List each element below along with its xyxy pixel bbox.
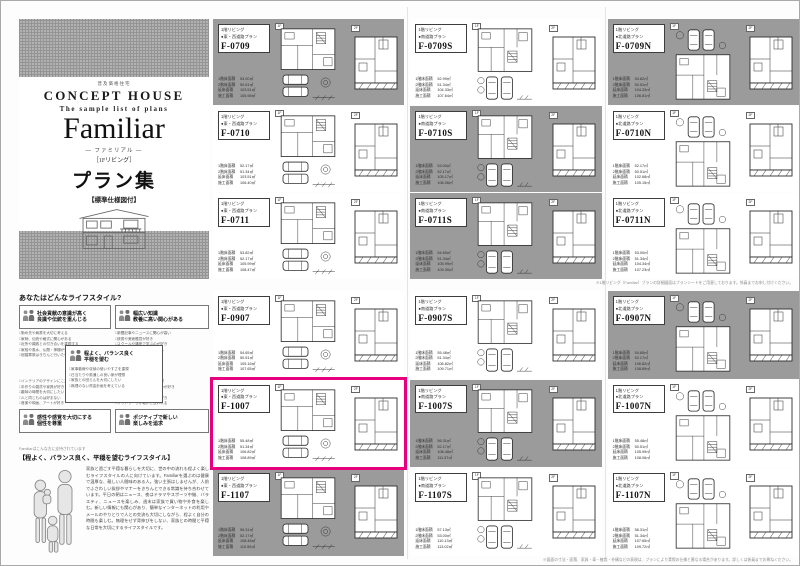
plan-label-box: 1階リビング●南道路プランF-1107S [415,473,467,502]
cover-title-block: 普及価格住宅 CONCEPT HOUSE The sample list of … [19,77,209,231]
recommend-lead: Familiarはこんな方に支持されています [19,447,209,452]
plan-label-box: 1階リビング●東・西道路プランF-0907 [218,296,270,325]
lifestyle-title: あなたはどんなライフスタイル? [19,293,209,303]
floor2-plan-drawing [353,122,399,180]
plan-living-label: 1階リビング [221,299,267,305]
plan-stats: 1階床面積52.17㎡2階床面積51.34㎡延床面積103.51㎡施工面積106… [218,164,255,186]
plan-id: F-0711N [616,215,662,225]
plan-stat-name: 施工面積 [613,545,632,551]
cover-series-name: Familiar [19,114,209,145]
plan-stats: 1階床面積54.65㎡2階床面積51.34㎡延床面積105.99㎡施工面積109… [415,251,452,273]
floor1-plan-drawing [472,201,538,275]
plan-id: F-0710N [616,128,662,138]
heading-line: 良識や伝統を重んじる [37,317,87,323]
plan-stat-value: 105.98㎡ [240,94,255,100]
floor2-tag: 2F [351,112,360,119]
plan-stat-value: 108.06㎡ [635,456,650,462]
plan-stats: 1階床面積53.00㎡2階床面積50.51㎡延床面積103.51㎡施工面積105… [218,77,255,99]
floor2-plan-drawing [551,484,597,542]
plan-column: 1階リビング●北道路プランF-0709N1階床面積53.82㎡2階床面積50.5… [608,19,799,279]
plan-card: 1階リビング●南道路プランF-0710S1階床面積53.00㎡2階床面積52.1… [410,106,601,192]
lifestyle-center-box: 程よく、バランス良く 平穏を望む □家事動線や収納の使いやすさを重視□日当たりや… [65,345,163,403]
floor2-tag: 2F [549,386,558,393]
plan-stats: 1階床面積57.13㎡2階床面積53.00㎡延床面積110.13㎡施工面積113… [415,528,452,550]
people-icon [69,348,82,366]
plan-stat-name: 施工面積 [613,94,632,100]
plan-label-box: 1階リビング●東・西道路プランF-1107 [218,473,270,502]
plan-card: 1階リビング●北道路プランF-1007N1階床面積55.48㎡2階床面積50.5… [608,380,799,468]
floor2-plan-drawing [748,35,794,93]
plan-id: F-1107S [418,490,464,500]
plan-living-label: 1階リビング [616,299,662,305]
floor1-plan-drawing [670,476,736,550]
plan-road-label: ●南道路プラン [418,34,464,40]
plan-stat-name: 施工面積 [218,268,237,274]
heading-line: 平穏を望む [84,357,109,363]
plan-living-label: 1階リビング [418,201,464,207]
plan-living-label: 1階リビング [616,476,662,482]
plan-stat-name: 施工面積 [415,456,434,462]
floor2-tag: 2F [549,199,558,206]
plan-road-label: ●南道路プラン [418,306,464,312]
plan-stats: 1階床面積56.31㎡2階床面積52.17㎡延床面積108.48㎡施工面積111… [415,439,452,461]
floor2-tag: 2F [746,386,755,393]
plan-stat-name: 施工面積 [613,268,632,274]
plan-stat-value: 106.81㎡ [635,94,650,100]
plan-id: F-0709 [221,41,267,51]
plan-id: F-0709S [418,41,464,51]
plan-id: F-1007 [221,401,267,411]
floor2-tag: 2F [351,474,360,481]
plan-stat-row: 施工面積107.65㎡ [218,367,255,373]
plan-stat-value: 108.89㎡ [240,456,255,462]
plan-stat-value: 105.15㎡ [635,181,650,187]
floor2-plan-drawing [748,122,794,180]
floor2-plan-drawing [353,307,399,365]
plan-id: F-0907N [616,313,662,323]
plan-stat-name: 施工面積 [415,367,434,373]
cover-title: プラン集 [19,166,209,193]
plan-card: 1階リビング●東・西道路プランF-07091階床面積53.00㎡2階床面積50.… [213,19,404,105]
cover-series-kana: ― ファミリアル ― [19,146,209,154]
plan-card: 1階リビング●南道路プランF-1007S1階床面積56.31㎡2階床面積52.1… [410,380,601,468]
grid-bottom-caption: ※図面の寸法・面積、家具・車・植栽・外構などの表現は、プランにより実際の仕様と異… [543,558,793,563]
plan-stat-row: 施工面積109.72㎡ [613,545,650,551]
plan-road-label: ●北道路プラン [616,483,662,489]
heading-line: 感性や感覚を大切にする [37,415,92,421]
plan-road-label: ●東・西道路プラン [221,483,267,489]
plan-catalog-sheet: 普及価格住宅 CONCEPT HOUSE The sample list of … [0,0,800,566]
lifestyle-diagram: 社会貢献の意識が高く 良識や伝統を重んじる □勤め先や肩書を大切に考える□家柄、… [19,305,209,443]
plan-card: 1階リビング●北道路プランF-1107N1階床面積56.31㎡2階床面積51.3… [608,468,799,556]
plan-id: F-1007N [616,401,662,411]
plan-stat-row: 施工面積108.89㎡ [218,456,255,462]
plan-road-label: ●南道路プラン [418,394,464,400]
plan-road-label: ●東・西道路プラン [221,306,267,312]
plan-living-label: 1階リビング [616,388,662,394]
floor1-plan-drawing [670,27,736,101]
plan-stat-row: 施工面積110.55㎡ [218,545,255,551]
floor2-tag: 2F [351,25,360,32]
heading-line: 楽しみを追求 [133,421,163,427]
plan-stat-row: 施工面積106.81㎡ [613,94,650,100]
plan-id: F-0709N [616,41,662,51]
floor2-tag: 2F [549,474,558,481]
plan-id: F-0711S [418,215,464,225]
plan-stat-value: 109.30㎡ [437,268,452,274]
floor2-plan-drawing [748,396,794,454]
plan-stat-value: 108.89㎡ [635,367,650,373]
plan-living-label: 1階リビング [418,299,464,305]
people-icon [22,308,35,326]
plan-stat-row: 施工面積108.89㎡ [613,367,650,373]
floor1-plan-drawing [670,201,736,275]
floor2-plan-drawing [551,209,597,267]
plan-column: 1階リビング●南道路プランF-0907S1階床面積55.48㎡2階床面積51.3… [410,291,601,556]
plan-living-label: 1階リビング [221,27,267,33]
plan-stat-name: 施工面積 [415,181,434,187]
plan-living-label: 1階リビング [418,114,464,120]
family-illustration [19,466,81,559]
plan-stats: 1階床面積53.82㎡2階床面積50.51㎡延床面積104.33㎡施工面積106… [613,77,650,99]
floor2-plan-drawing [353,209,399,267]
heading-line: 個性を尊重 [37,421,62,427]
floor2-tag: 2F [351,297,360,304]
plan-card: 1階リビング●南道路プランF-1107S1階床面積57.13㎡2階床面積53.0… [410,468,601,556]
plan-label-box: 1階リビング●南道路プランF-1007S [415,385,467,414]
plan-road-label: ●北道路プラン [616,208,662,214]
quadrant-heading: 感性や感覚を大切にする 個性を尊重 [19,409,111,433]
floor2-tag: 2F [351,386,360,393]
house-sketch-icon [19,206,209,257]
people-icon [22,412,35,430]
plan-stat-value: 113.02㎡ [437,545,452,551]
plan-living-label: 1階リビング [418,476,464,482]
plan-road-label: ●南道路プラン [418,121,464,127]
floor2-plan-drawing [551,307,597,365]
plan-stats: 1階床面積53.82㎡2階床面積52.17㎡延床面積105.99㎡施工面積108… [218,251,255,273]
plan-column: 1階リビング●北道路プランF-0907N1階床面積54.65㎡2階床面積52.1… [608,291,799,556]
floor1-plan-drawing [670,114,736,188]
plan-road-label: ●東・西道路プラン [221,208,267,214]
plan-stat-name: 施工面積 [415,94,434,100]
plan-road-label: ●南道路プラン [418,208,464,214]
plan-stats: 1階床面積53.00㎡2階床面積51.34㎡延床面積104.34㎡施工面積107… [613,251,650,273]
people-icon [118,412,131,430]
floor2-tag: 2F [351,199,360,206]
floor2-plan-drawing [353,35,399,93]
plan-stat-row: 施工面積108.06㎡ [613,456,650,462]
plan-road-label: ●北道路プラン [616,34,662,40]
floor2-plan-drawing [748,307,794,365]
plan-stats: 1階床面積56.31㎡2階床面積52.17㎡延床面積108.48㎡施工面積110… [218,528,255,550]
plan-living-label: 1階リビング [221,201,267,207]
center-heading: 程よく、バランス良く 平穏を望む [69,348,159,366]
plan-stat-value: 108.47㎡ [240,268,255,274]
floor1-plan-drawing [275,476,341,550]
people-icon [118,308,131,326]
floor2-plan-drawing [353,396,399,454]
plan-stat-row: 施工面積107.64㎡ [415,94,452,100]
plan-stats: 1階床面積52.17㎡2階床面積50.51㎡延床面積102.68㎡施工面積105… [613,164,650,186]
plan-id: F-1007S [418,401,464,411]
plan-stat-row: 施工面積105.15㎡ [613,181,650,187]
plan-stat-name: 施工面積 [218,181,237,187]
plan-stat-name: 施工面積 [613,456,632,462]
plan-stat-value: 109.71㎡ [437,367,452,373]
plan-label-box: 1階リビング●東・西道路プランF-0710 [218,111,270,140]
plan-label-box: 1階リビング●南道路プランF-0907S [415,296,467,325]
floor1-plan-drawing [275,201,341,275]
plan-stat-value: 107.64㎡ [437,94,452,100]
plan-road-label: ●東・西道路プラン [221,34,267,40]
plan-stat-row: 施工面積107.23㎡ [613,268,650,274]
quadrant-heading-text: 感性や感覚を大切にする 個性を尊重 [37,415,92,428]
plan-card: 1階リビング●北道路プランF-0907N1階床面積54.65㎡2階床面積52.1… [608,291,799,379]
quadrant-heading-text: 社会貢献の意識が高く 良識や伝統を重んじる [37,311,87,324]
plan-id: F-1107N [616,490,662,500]
plan-stat-value: 110.55㎡ [240,545,255,551]
floor2-tag: 2F [549,25,558,32]
plan-stat-value: 107.23㎡ [635,268,650,274]
plan-id: F-0711 [221,215,267,225]
plan-id: F-0710 [221,128,267,138]
plan-stat-row: 施工面積108.47㎡ [218,268,255,274]
floor1-plan-drawing [275,114,341,188]
floor1-plan-drawing [275,388,341,462]
floor2-plan-drawing [748,209,794,267]
plan-label-box: 1階リビング●南道路プランF-0710S [415,111,467,140]
cover-brand: CONCEPT HOUSE [19,88,209,104]
plan-card: 1階リビング●東・西道路プランF-07101階床面積52.17㎡2階床面積51.… [213,106,404,192]
plan-road-label: ●東・西道路プラン [221,394,267,400]
plan-living-label: 1階リビング [221,114,267,120]
plan-stats: 1階床面積52.99㎡2階床面積51.34㎡延床面積104.33㎡施工面積107… [415,77,452,99]
plan-grid-top: 1階リビング●東・西道路プランF-07091階床面積53.00㎡2階床面積50.… [213,19,799,279]
plan-stat-row: 施工面積109.71㎡ [415,367,452,373]
floor1-plan-drawing [472,476,538,550]
plan-road-label: ●北道路プラン [616,121,662,127]
plan-road-label: ●北道路プラン [616,394,662,400]
plan-stat-value: 108.06㎡ [437,181,452,187]
plan-stat-name: 施工面積 [218,94,237,100]
floor1-plan-drawing [472,114,538,188]
floor2-tag: 2F [549,297,558,304]
plan-stat-value: 111.37㎡ [437,456,452,462]
floor2-plan-drawing [353,484,399,542]
plan-stats: 1階床面積55.48㎡2階床面積50.51㎡延床面積105.99㎡施工面積108… [613,439,650,461]
plan-label-box: 1階リビング●東・西道路プランF-1007 [218,385,270,414]
floor2-plan-drawing [748,484,794,542]
plan-stat-row: 施工面積109.30㎡ [415,268,452,274]
floor1-plan-drawing [670,388,736,462]
floor2-tag: 2F [549,112,558,119]
floor2-plan-drawing [551,122,597,180]
plan-stats: 1階床面積55.48㎡2階床面積51.34㎡延床面積106.82㎡施工面積108… [218,439,255,461]
quadrant-heading-text: 幅広い知識 教養に高い関心がある [133,311,183,324]
floor1-plan-drawing [670,299,736,373]
plan-living-label: 1階リビング [616,201,662,207]
cover-spec-note: 【標準仕様図付】 [19,194,209,204]
floor2-tag: 2F [746,474,755,481]
cover-tagline: 普及価格住宅 [19,81,209,87]
plan-road-label: ●南道路プラン [418,483,464,489]
plan-column: 1階リビング●東・西道路プランF-09071階床面積54.65㎡2階床面積50.… [213,291,404,556]
floor2-tag: 2F [746,199,755,206]
plan-stat-row: 施工面積105.98㎡ [218,94,255,100]
plan-living-label: 1階リビング [221,388,267,394]
center-items: □家事動線や収納の使いやすさを重視□日当たりや風通しの良い家が理想□家族との団ら… [69,367,159,389]
plan-stat-row: 施工面積111.37㎡ [415,456,452,462]
floor2-plan-drawing [551,396,597,454]
plan-card: 1階リビング●南道路プランF-0709S1階床面積52.99㎡2階床面積51.3… [410,19,601,105]
floor1-plan-drawing [472,388,538,462]
plan-column: 1階リビング●東・西道路プランF-07091階床面積53.00㎡2階床面積50.… [213,19,404,279]
plan-label-box: 1階リビング●東・西道路プランF-0709 [218,24,270,53]
plan-card: 1階リビング●南道路プランF-0711S1階床面積54.65㎡2階床面積51.3… [410,193,601,279]
plan-stats: 1階床面積54.65㎡2階床面積52.17㎡延床面積106.82㎡施工面積108… [613,351,650,373]
cover-series-note: ［1Fリビング］ [19,155,209,164]
plan-label-box: 1階リビング●北道路プランF-1107N [613,473,665,502]
floor1-plan-drawing [472,299,538,373]
lifestyle-item: □無理のない資金計画を考えている [69,384,159,390]
plan-stats: 1階床面積55.48㎡2階床面積51.34㎡延床面積106.82㎡施工面積109… [415,351,452,373]
plan-card: 1階リビング●北道路プランF-0710N1階床面積52.17㎡2階床面積50.5… [608,106,799,192]
plan-stat-row: 施工面積108.06㎡ [415,181,452,187]
plan-stats: 1階床面積56.31㎡2階床面積51.34㎡延床面積107.65㎡施工面積109… [613,528,650,550]
plan-label-box: 1階リビング●南道路プランF-0711S [415,198,467,227]
heading-line: 教養に高い関心がある [133,317,183,323]
heading-line: ポジティブで新しい [133,415,178,421]
quadrant-heading: ポジティブで新しい 楽しみを追求 [115,409,209,433]
plan-road-label: ●北道路プラン [616,306,662,312]
floor2-tag: 2F [746,297,755,304]
plan-living-label: 1階リビング [616,27,662,33]
plan-stat-name: 施工面積 [218,367,237,373]
plan-stat-name: 施工面積 [218,456,237,462]
recommend-section: Familiarはこんな方に支持されています 【程よく、バランス良く、平穏を望む… [19,447,209,557]
plan-stat-row: 施工面積113.02㎡ [415,545,452,551]
plan-grid-bottom: 1階リビング●東・西道路プランF-09071階床面積54.65㎡2階床面積50.… [213,291,799,556]
plan-label-box: 1階リビング●北道路プランF-0709N [613,24,665,53]
plan-living-label: 1階リビング [418,388,464,394]
plan-stat-value: 106.40㎡ [240,181,255,187]
plan-card: 1階リビング●東・西道路プランF-09071階床面積54.65㎡2階床面積50.… [213,291,404,379]
floor1-plan-drawing [275,27,341,101]
cover-panel: 普及価格住宅 CONCEPT HOUSE The sample list of … [19,19,209,279]
plan-card: 1階リビング●東・西道路プランF-11071階床面積56.31㎡2階床面積52.… [213,468,404,556]
lifestyle-section: あなたはどんなライフスタイル? 社会貢献の意識が高く 良識や伝統を重んじる □勤… [19,293,209,445]
heading-line: 幅広い知識 [133,311,158,317]
plan-id: F-1107 [221,490,267,500]
plan-id: F-0907S [418,313,464,323]
plan-label-box: 1階リビング●北道路プランF-0710N [613,111,665,140]
quadrant-heading-text: ポジティブで新しい 楽しみを追求 [133,415,178,428]
plan-card: 1階リビング●北道路プランF-0711N1階床面積53.00㎡2階床面積51.3… [608,193,799,279]
plan-stat-row: 施工面積106.40㎡ [218,181,255,187]
quadrant-heading: 幅広い知識 教養に高い関心がある [115,305,209,329]
plan-card: 1階リビング●東・西道路プランF-10071階床面積55.48㎡2階床面積51.… [213,380,404,468]
recommend-heading: 【程よく、バランス良く、平穏を望むライフスタイル】 [19,453,209,462]
plan-label-box: 1階リビング●北道路プランF-0907N [613,296,665,325]
plan-living-label: 1階リビング [221,476,267,482]
plan-stat-name: 施工面積 [415,268,434,274]
grid-top-caption: ※1階リビング（Familiar）プランの詳細図面はプランシートをご用意しており… [596,281,793,286]
heading-line: 程よく、バランス良く [84,351,134,357]
quadrant-heading: 社会貢献の意識が高く 良識や伝統を重んじる [19,305,111,329]
plan-living-label: 1階リビング [418,27,464,33]
heading-line: 社会貢献の意識が高く [37,311,87,317]
plan-column: 1階リビング●南道路プランF-0709S1階床面積52.99㎡2階床面積51.3… [410,19,601,279]
plan-card: 1階リビング●北道路プランF-0709N1階床面積53.82㎡2階床面積50.5… [608,19,799,105]
center-heading-text: 程よく、バランス良く 平穏を望む [84,351,134,364]
plan-stat-value: 109.72㎡ [635,545,650,551]
floor2-tag: 2F [746,112,755,119]
plan-stats: 1階床面積54.65㎡2階床面積50.51㎡延床面積105.16㎡施工面積107… [218,351,255,373]
plan-road-label: ●東・西道路プラン [221,121,267,127]
plan-card: 1階リビング●東・西道路プランF-07111階床面積53.82㎡2階床面積52.… [213,193,404,279]
plan-stat-name: 施工面積 [218,545,237,551]
plan-living-label: 1階リビング [616,114,662,120]
plan-stat-name: 施工面積 [415,545,434,551]
plan-stat-value: 107.65㎡ [240,367,255,373]
plan-stat-name: 施工面積 [613,181,632,187]
plan-label-box: 1階リビング●北道路プランF-0711N [613,198,665,227]
plan-label-box: 1階リビング●北道路プランF-1007N [613,385,665,414]
floor2-tag: 2F [746,25,755,32]
floor1-plan-drawing [472,27,538,101]
floor1-plan-drawing [275,299,341,373]
plan-label-box: 1階リビング●南道路プランF-0709S [415,24,467,53]
recommend-body: 家族と過ごす平穏な暮らしを大切に、世の中の流れも程よく楽しむライフスタイルの人に… [86,466,209,559]
plan-label-box: 1階リビング●東・西道路プランF-0711 [218,198,270,227]
plan-card: 1階リビング●南道路プランF-0907S1階床面積55.48㎡2階床面積51.3… [410,291,601,379]
plan-id: F-0710S [418,128,464,138]
plan-stats: 1階床面積53.00㎡2階床面積52.17㎡延床面積105.17㎡施工面積108… [415,164,452,186]
floor2-plan-drawing [551,35,597,93]
plan-stat-name: 施工面積 [613,367,632,373]
plan-id: F-0907 [221,313,267,323]
